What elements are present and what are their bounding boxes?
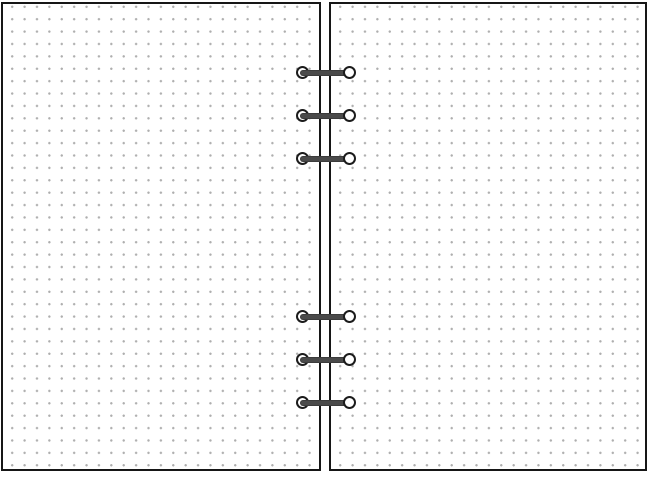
notebook-spread — [0, 0, 652, 477]
right-page — [329, 2, 647, 471]
left-page — [1, 2, 321, 471]
